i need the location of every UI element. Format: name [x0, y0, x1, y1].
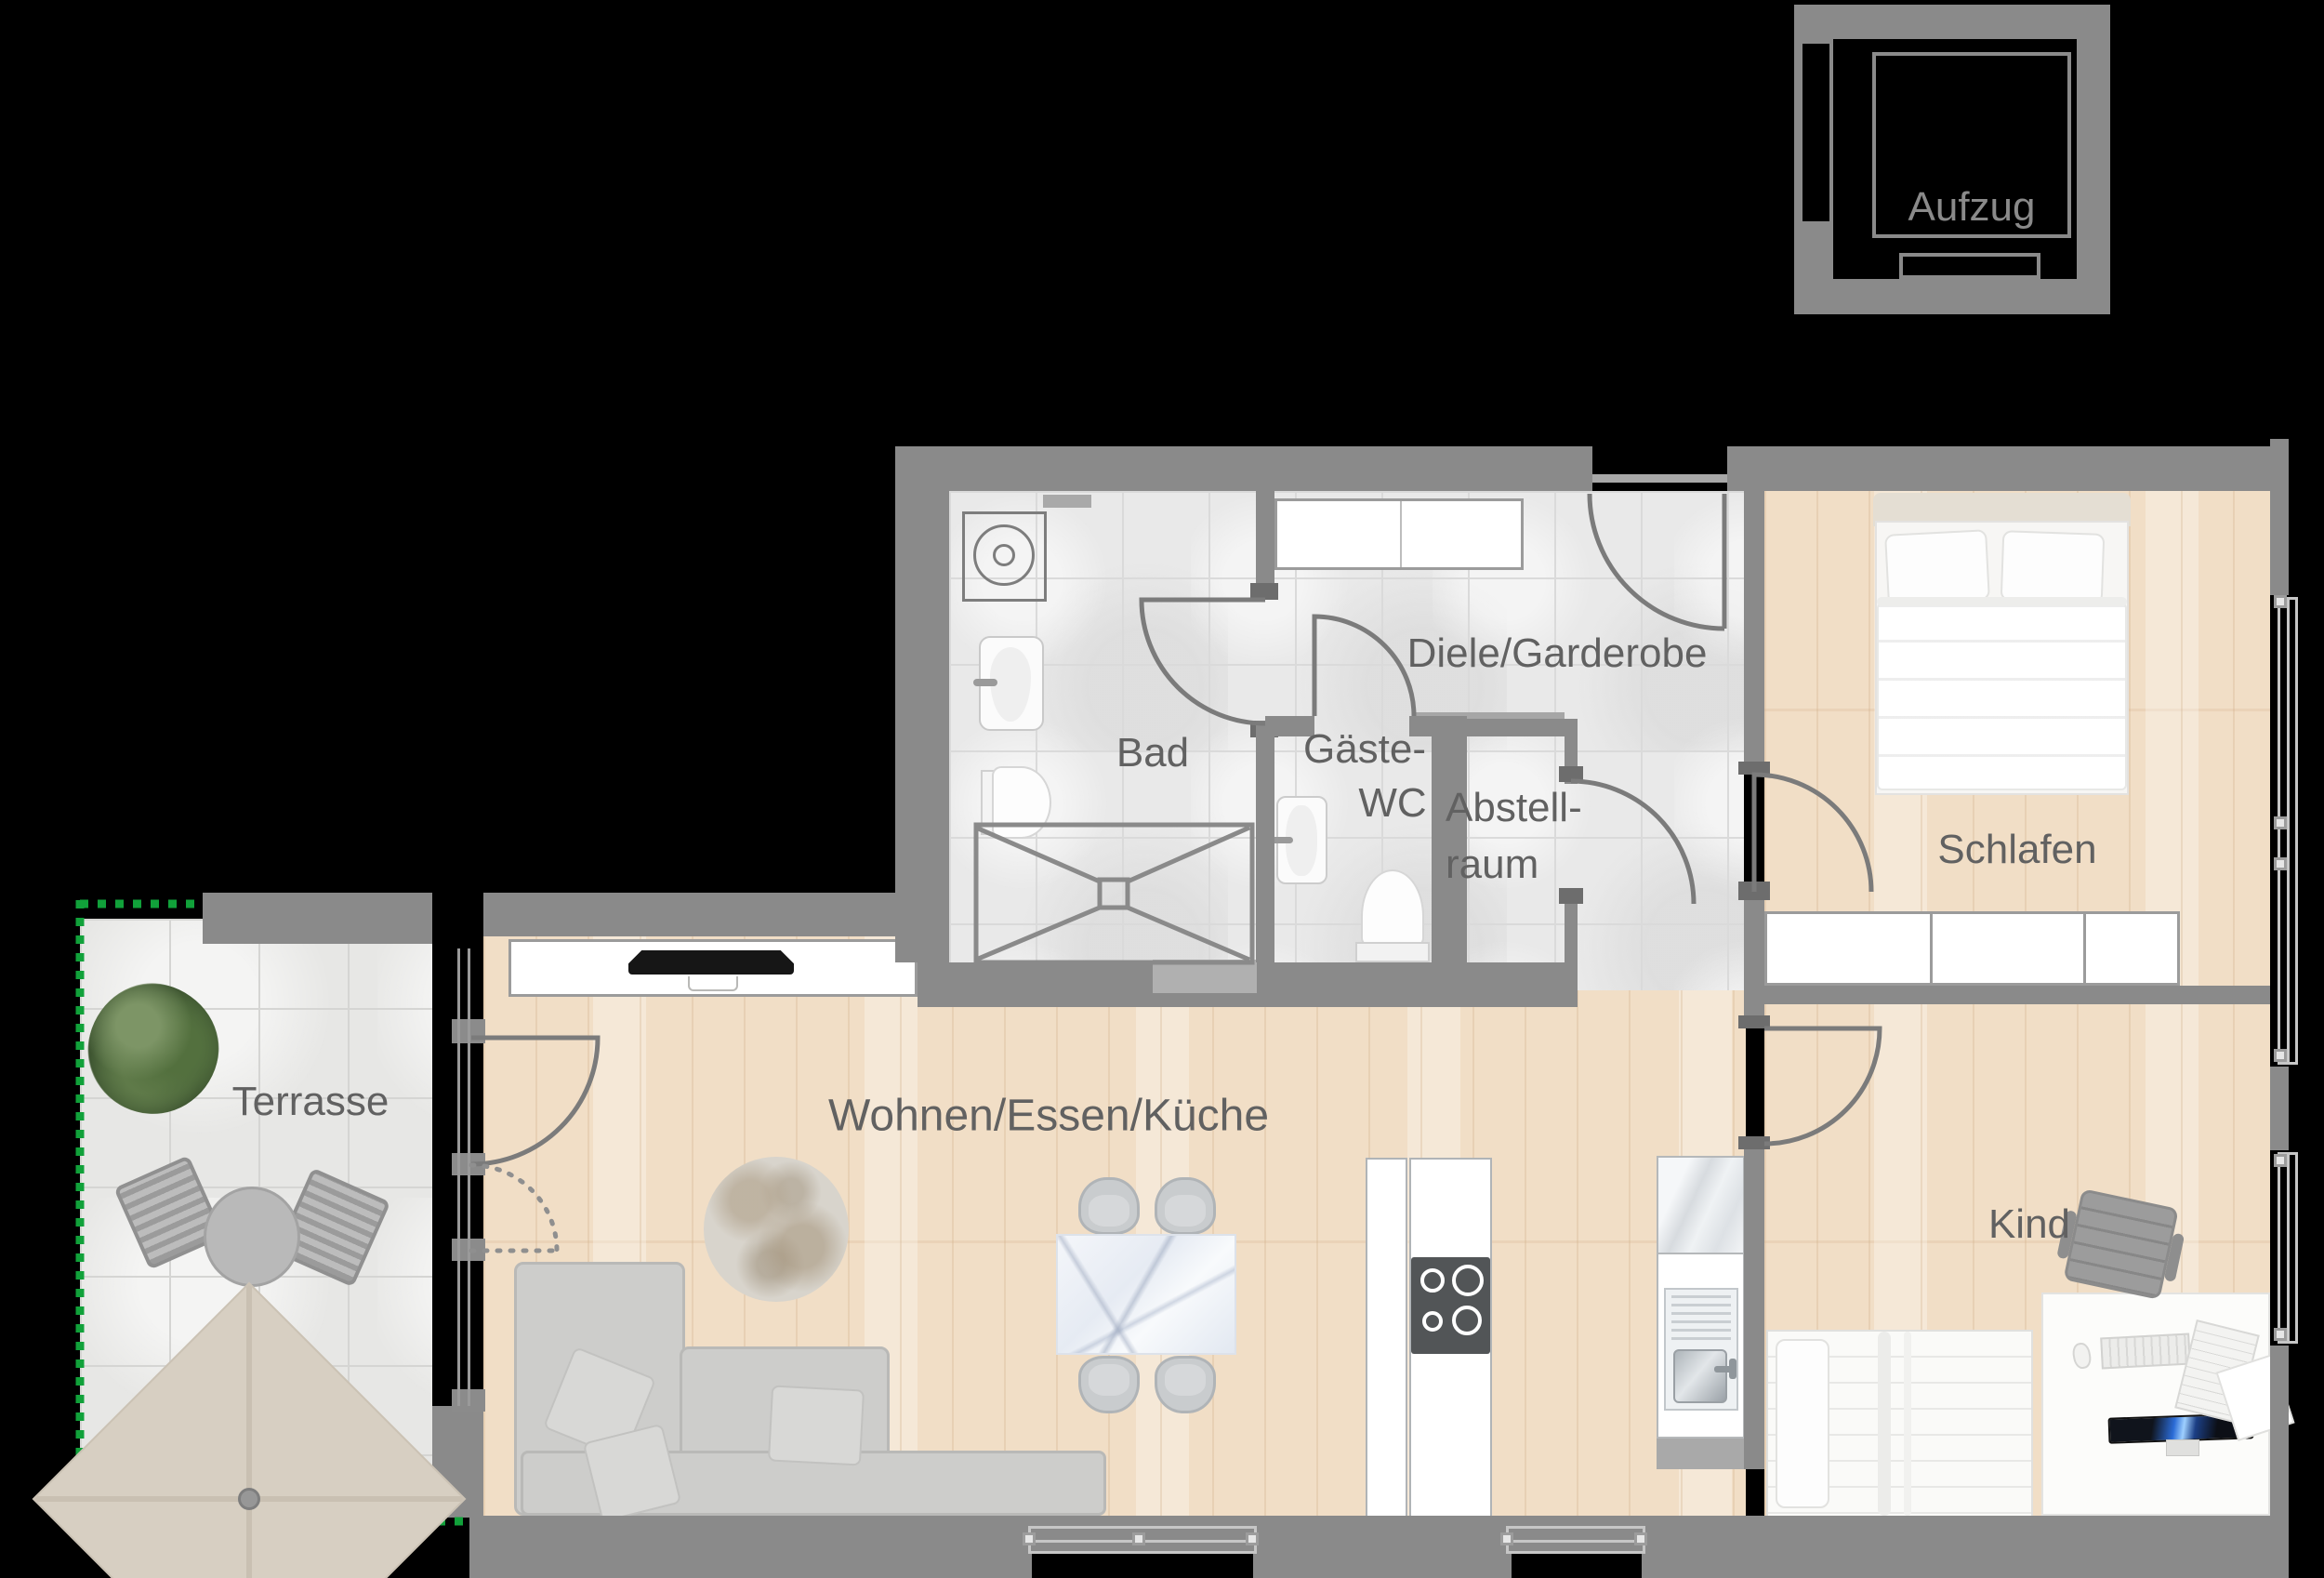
label-wohnen: Wohnen/Essen/Küche: [828, 1091, 1269, 1142]
bad-door-swing: [1142, 600, 1265, 723]
label-gaeste-wc-line2: WC: [1358, 780, 1426, 827]
label-bad: Bad: [1116, 730, 1189, 776]
label-kind: Kind: [1988, 1201, 2070, 1248]
label-terrasse: Terrasse: [232, 1079, 390, 1125]
kind-door-swing: [1764, 1028, 1880, 1144]
label-schlafen: Schlafen: [1937, 827, 2096, 873]
shower: [976, 825, 1252, 962]
label-abstellraum-line2: raum: [1446, 842, 1538, 888]
label-aufzug: Aufzug: [1908, 184, 2036, 231]
parasol-pole: [238, 1488, 260, 1510]
plan-linework: [0, 0, 2324, 1578]
label-gaeste-wc-line1: Gäste-: [1303, 726, 1426, 773]
floor-plan: Aufzug Bad Gäste- WC Diele/Garderobe Abs…: [0, 0, 2324, 1578]
schlafen-door-swing: [1754, 775, 1871, 892]
entrance-door-swing: [1590, 494, 1724, 629]
wc-door-swing: [1314, 617, 1414, 716]
label-diele: Diele/Garderobe: [1407, 630, 1708, 677]
abstell-door-swing: [1571, 781, 1694, 904]
terrace-door-swing: [471, 1038, 598, 1164]
terrace-door-second-leaf-dashed: [471, 1165, 557, 1251]
label-abstellraum-line1: Abstell-: [1446, 785, 1582, 831]
